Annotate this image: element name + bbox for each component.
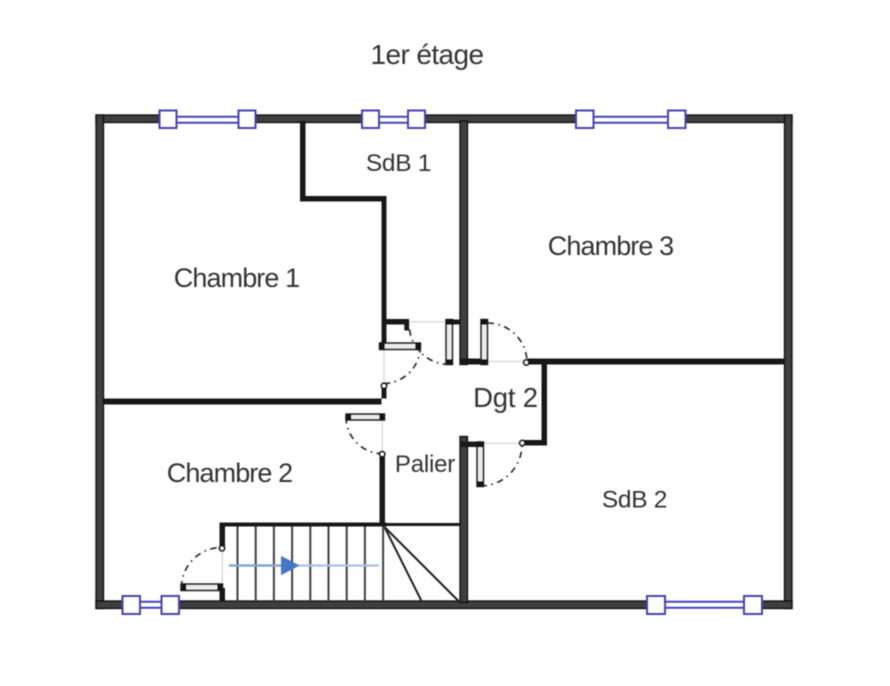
- svg-text:SdB 2: SdB 2: [602, 487, 667, 514]
- svg-text:SdB 1: SdB 1: [366, 150, 431, 177]
- svg-text:Chambre 1: Chambre 1: [174, 263, 299, 293]
- svg-text:Dgt 2: Dgt 2: [473, 382, 538, 413]
- svg-text:Chambre 3: Chambre 3: [548, 231, 673, 261]
- svg-text:Chambre 2: Chambre 2: [167, 458, 292, 488]
- svg-text:1er étage: 1er étage: [371, 39, 484, 70]
- svg-text:Palier: Palier: [395, 451, 455, 478]
